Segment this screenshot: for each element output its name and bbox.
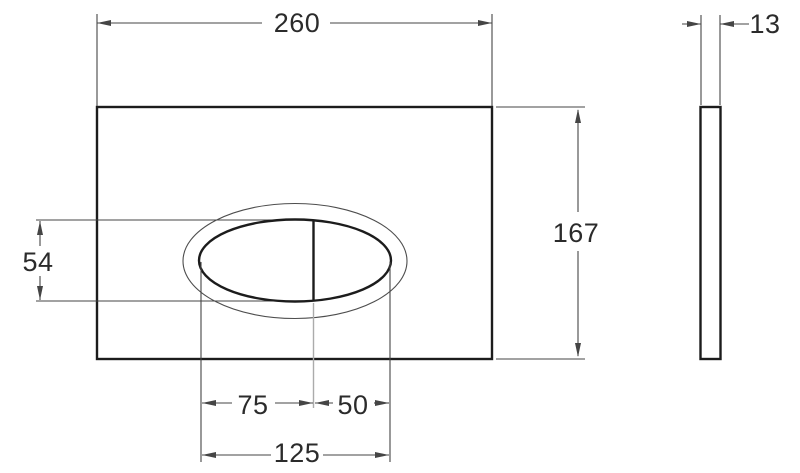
- dim-label-plate-thickness: 13: [749, 9, 780, 39]
- arrowhead-125-right: [375, 452, 389, 458]
- arrowhead-thickness-right: [720, 21, 734, 27]
- arrowhead-75-left: [202, 400, 216, 406]
- arrowhead-button-height-bottom: [37, 286, 43, 300]
- arrowhead-50-left: [315, 400, 329, 406]
- dim-label-plate-height: 167: [553, 218, 600, 248]
- dim-label-button-total-width: 125: [274, 438, 321, 468]
- technical-drawing-canvas: 260 167 54 75 50 125: [0, 0, 800, 473]
- dim-label-button-small-width: 50: [337, 390, 368, 420]
- arrowhead-height-bottom: [575, 343, 581, 357]
- side-view-plate-outline: [701, 107, 721, 359]
- arrowhead-125-left: [202, 452, 216, 458]
- arrowhead-width-left: [97, 20, 111, 26]
- arrowhead-width-right: [478, 20, 492, 26]
- dim-label-button-large-width: 75: [237, 390, 268, 420]
- dim-label-button-height: 54: [22, 247, 53, 277]
- arrowhead-button-height-top: [37, 221, 43, 235]
- arrowhead-75-right: [299, 400, 313, 406]
- arrowhead-50-right: [375, 400, 389, 406]
- drawing-area: 260 167 54 75 50 125: [0, 0, 800, 473]
- dim-label-plate-width: 260: [274, 8, 321, 38]
- arrowhead-thickness-left: [687, 21, 701, 27]
- arrowhead-height-top: [575, 109, 581, 123]
- button-inner-ellipse: [199, 220, 391, 302]
